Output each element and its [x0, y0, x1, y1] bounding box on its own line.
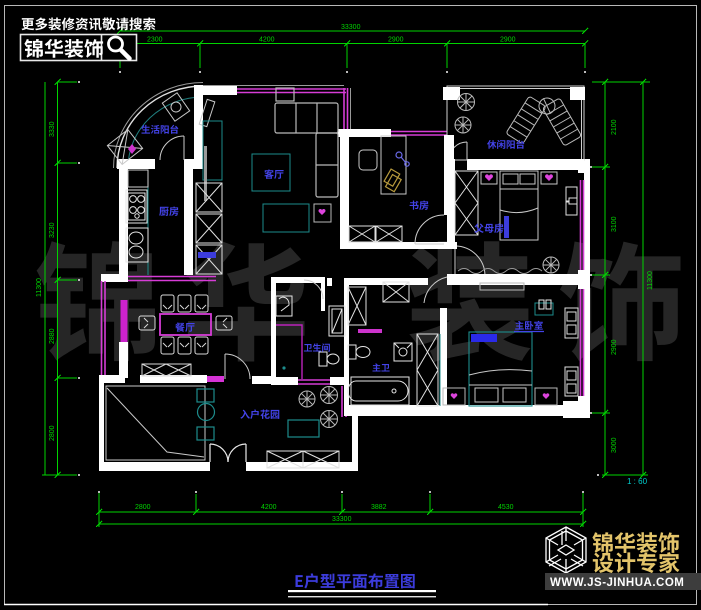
svg-text:1 : 60: 1 : 60	[627, 477, 648, 486]
svg-text:2900: 2900	[611, 339, 618, 355]
svg-text:3330: 3330	[49, 121, 56, 137]
svg-text:2100: 2100	[611, 119, 618, 135]
svg-text:11300: 11300	[36, 278, 43, 297]
svg-text:2800: 2800	[135, 504, 151, 511]
svg-text:4200: 4200	[259, 37, 275, 44]
svg-text:2300: 2300	[147, 37, 163, 44]
svg-text:3100: 3100	[611, 216, 618, 232]
svg-text:WWW.JS-JINHUA.COM: WWW.JS-JINHUA.COM	[550, 577, 684, 589]
svg-text:2900: 2900	[388, 37, 404, 44]
svg-text:4530: 4530	[498, 504, 514, 511]
svg-text:33300: 33300	[341, 24, 361, 31]
svg-text:2900: 2900	[500, 37, 516, 44]
svg-text:33300: 33300	[332, 516, 352, 523]
svg-text:3230: 3230	[49, 222, 56, 238]
svg-text:2800: 2800	[49, 425, 56, 441]
svg-text:4200: 4200	[261, 504, 277, 511]
svg-text:11300: 11300	[647, 271, 654, 290]
svg-text:3000: 3000	[611, 437, 618, 453]
svg-text:3882: 3882	[371, 504, 387, 511]
svg-text:2880: 2880	[49, 328, 56, 344]
